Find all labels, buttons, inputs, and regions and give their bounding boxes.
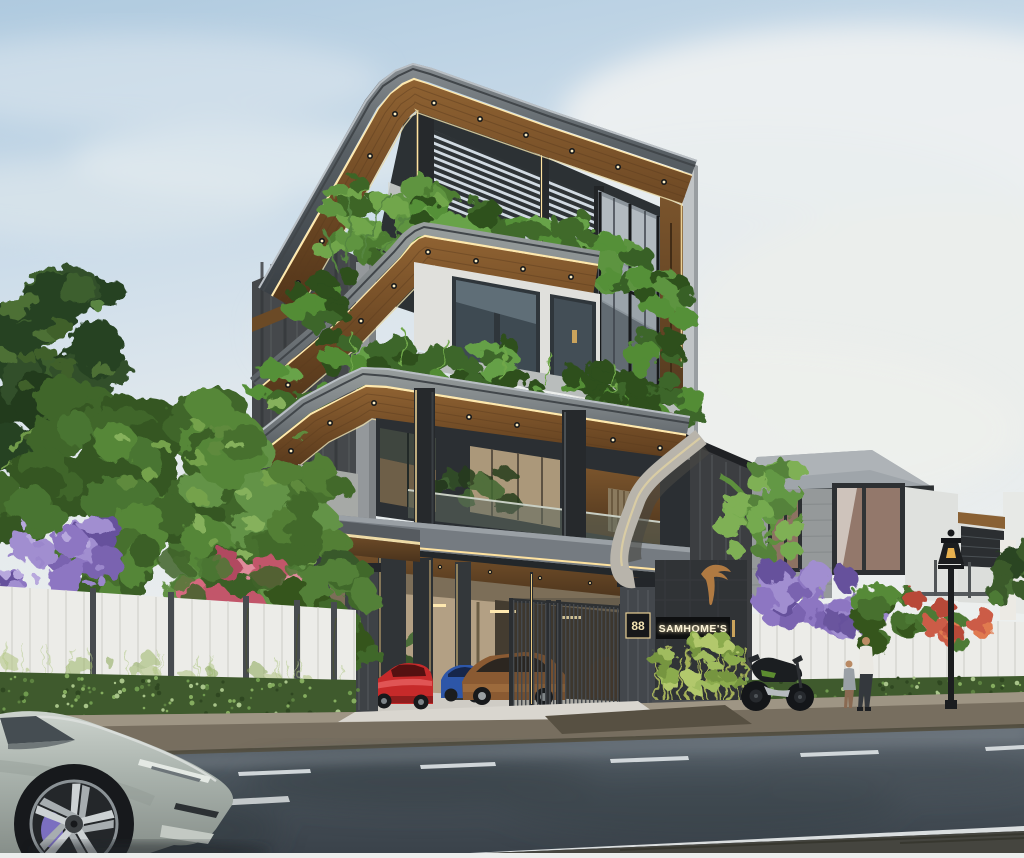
svg-text:88: 88 [631,619,645,633]
